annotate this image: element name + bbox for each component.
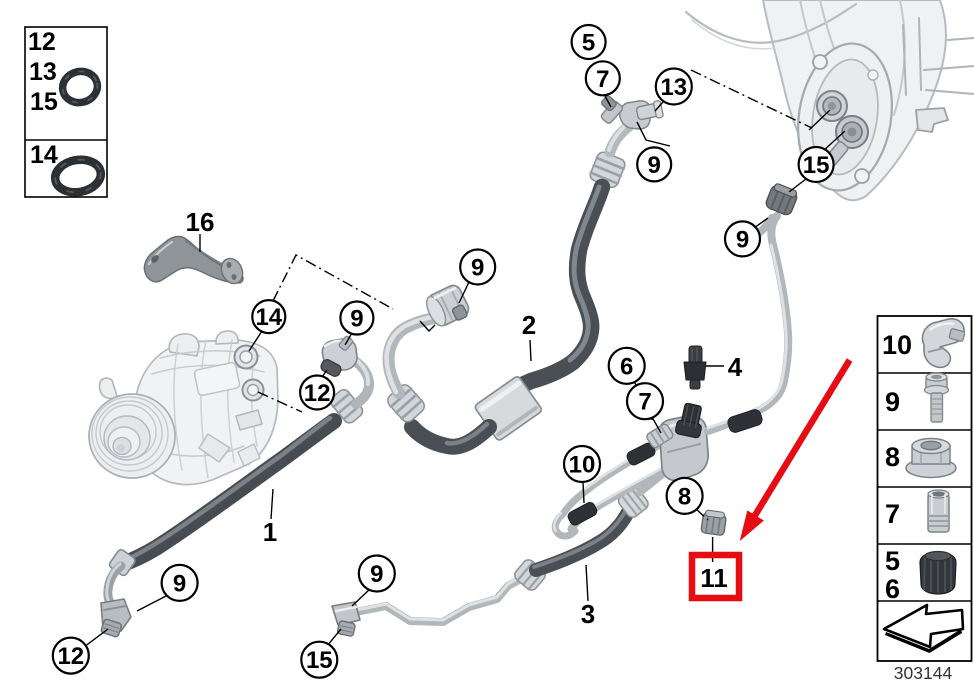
- svg-text:5: 5: [582, 30, 595, 57]
- svg-text:3: 3: [581, 599, 595, 629]
- svg-text:9: 9: [370, 561, 383, 588]
- svg-text:303144: 303144: [894, 663, 953, 683]
- svg-text:13: 13: [660, 74, 687, 101]
- svg-text:9: 9: [648, 152, 661, 179]
- svg-text:16: 16: [186, 207, 215, 237]
- svg-text:6: 6: [885, 574, 900, 604]
- svg-text:5: 5: [885, 546, 900, 576]
- svg-text:8: 8: [678, 483, 691, 510]
- svg-text:8: 8: [885, 442, 900, 472]
- svg-text:15: 15: [803, 152, 830, 179]
- svg-text:15: 15: [30, 88, 58, 116]
- svg-text:9: 9: [173, 570, 186, 597]
- svg-text:7: 7: [638, 389, 651, 416]
- svg-text:10: 10: [569, 452, 596, 479]
- svg-text:1: 1: [263, 517, 277, 547]
- svg-text:11: 11: [700, 563, 728, 593]
- svg-text:12: 12: [304, 380, 331, 407]
- svg-text:12: 12: [57, 643, 84, 670]
- svg-text:12: 12: [28, 28, 56, 56]
- svg-text:9: 9: [885, 387, 900, 417]
- svg-text:9: 9: [350, 306, 363, 333]
- svg-text:9: 9: [736, 226, 749, 253]
- svg-text:9: 9: [471, 255, 484, 282]
- svg-text:14: 14: [255, 304, 282, 331]
- svg-text:2: 2: [522, 310, 536, 340]
- svg-text:14: 14: [30, 141, 58, 169]
- svg-text:4: 4: [728, 352, 743, 382]
- svg-text:6: 6: [620, 353, 633, 380]
- svg-text:15: 15: [306, 647, 333, 674]
- svg-text:7: 7: [885, 499, 900, 529]
- svg-text:7: 7: [596, 66, 609, 93]
- svg-text:10: 10: [882, 330, 912, 360]
- svg-text:13: 13: [29, 58, 57, 86]
